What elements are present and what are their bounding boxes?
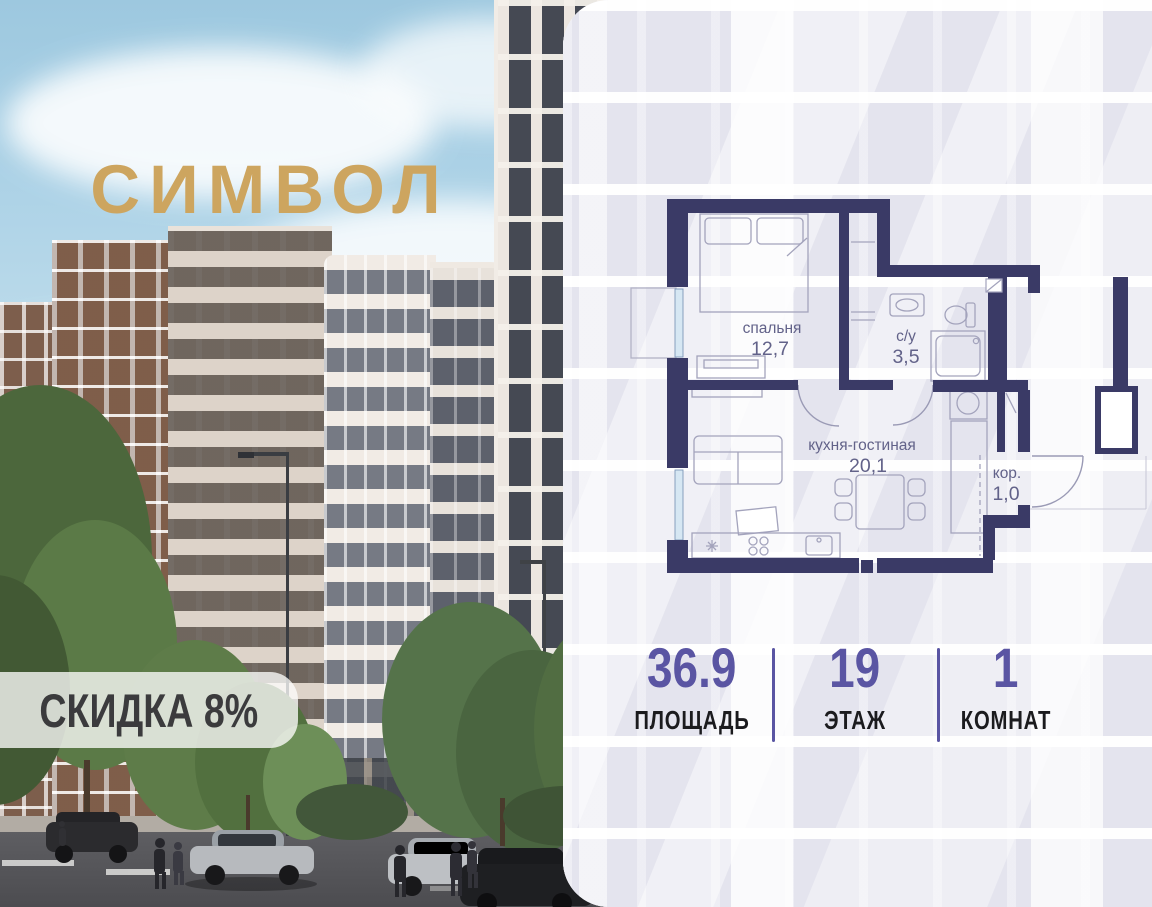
- stat-rooms: 1 КОМНАТ: [948, 640, 1064, 736]
- stat-floor-value: 19: [829, 640, 880, 696]
- room-name-bedroom: спальня: [743, 320, 802, 337]
- stat-area-label: ПЛОЩАДЬ: [634, 705, 749, 736]
- project-logo: СИМВОЛ: [0, 150, 540, 229]
- room-name-corridor: кор.: [993, 465, 1022, 482]
- stat-divider: [937, 648, 940, 742]
- project-photo: СИМВОЛ СКИДКА 8%: [0, 0, 622, 907]
- discount-badge-text: СКИДКА 8%: [40, 683, 259, 738]
- stat-floor: 19 ЭТАЖ: [815, 640, 894, 736]
- stat-divider: [772, 648, 775, 742]
- apartment-listing-card[interactable]: СИМВОЛ СКИДКА 8%: [0, 0, 1152, 907]
- bath-corner-shelf: [986, 279, 1002, 292]
- trees: [0, 385, 622, 854]
- room-area-bathroom: 3,5: [892, 346, 919, 368]
- room-area-bedroom: 12,7: [751, 338, 789, 360]
- street-scene: [0, 0, 622, 907]
- discount-badge: СКИДКА 8%: [0, 672, 298, 748]
- apartment-stats: 36.9 ПЛОЩАДЬ 19 ЭТАЖ 1 КОМНАТ: [563, 640, 1152, 760]
- car-sedan-silver: [185, 830, 317, 891]
- room-name-bathroom: с/у: [896, 328, 916, 345]
- stat-rooms-label: КОМНАТ: [961, 705, 1051, 736]
- neighbor-shaft: [1098, 389, 1135, 451]
- floor-plan: спальня 12,7 с/у 3,5 кухня-гостиная 20,1…: [563, 0, 1152, 907]
- stat-area-value: 36.9: [647, 640, 736, 696]
- room-area-kitchen-living: 20,1: [849, 455, 887, 477]
- plan-panel: спальня 12,7 с/у 3,5 кухня-гостиная 20,1…: [563, 0, 1152, 907]
- room-name-kitchen-living: кухня-гостиная: [808, 437, 916, 454]
- room-area-corridor: 1,0: [992, 483, 1019, 505]
- stat-area: 36.9 ПЛОЩАДЬ: [618, 640, 766, 736]
- stat-floor-label: ЭТАЖ: [824, 705, 886, 736]
- stat-rooms-value: 1: [993, 640, 1019, 696]
